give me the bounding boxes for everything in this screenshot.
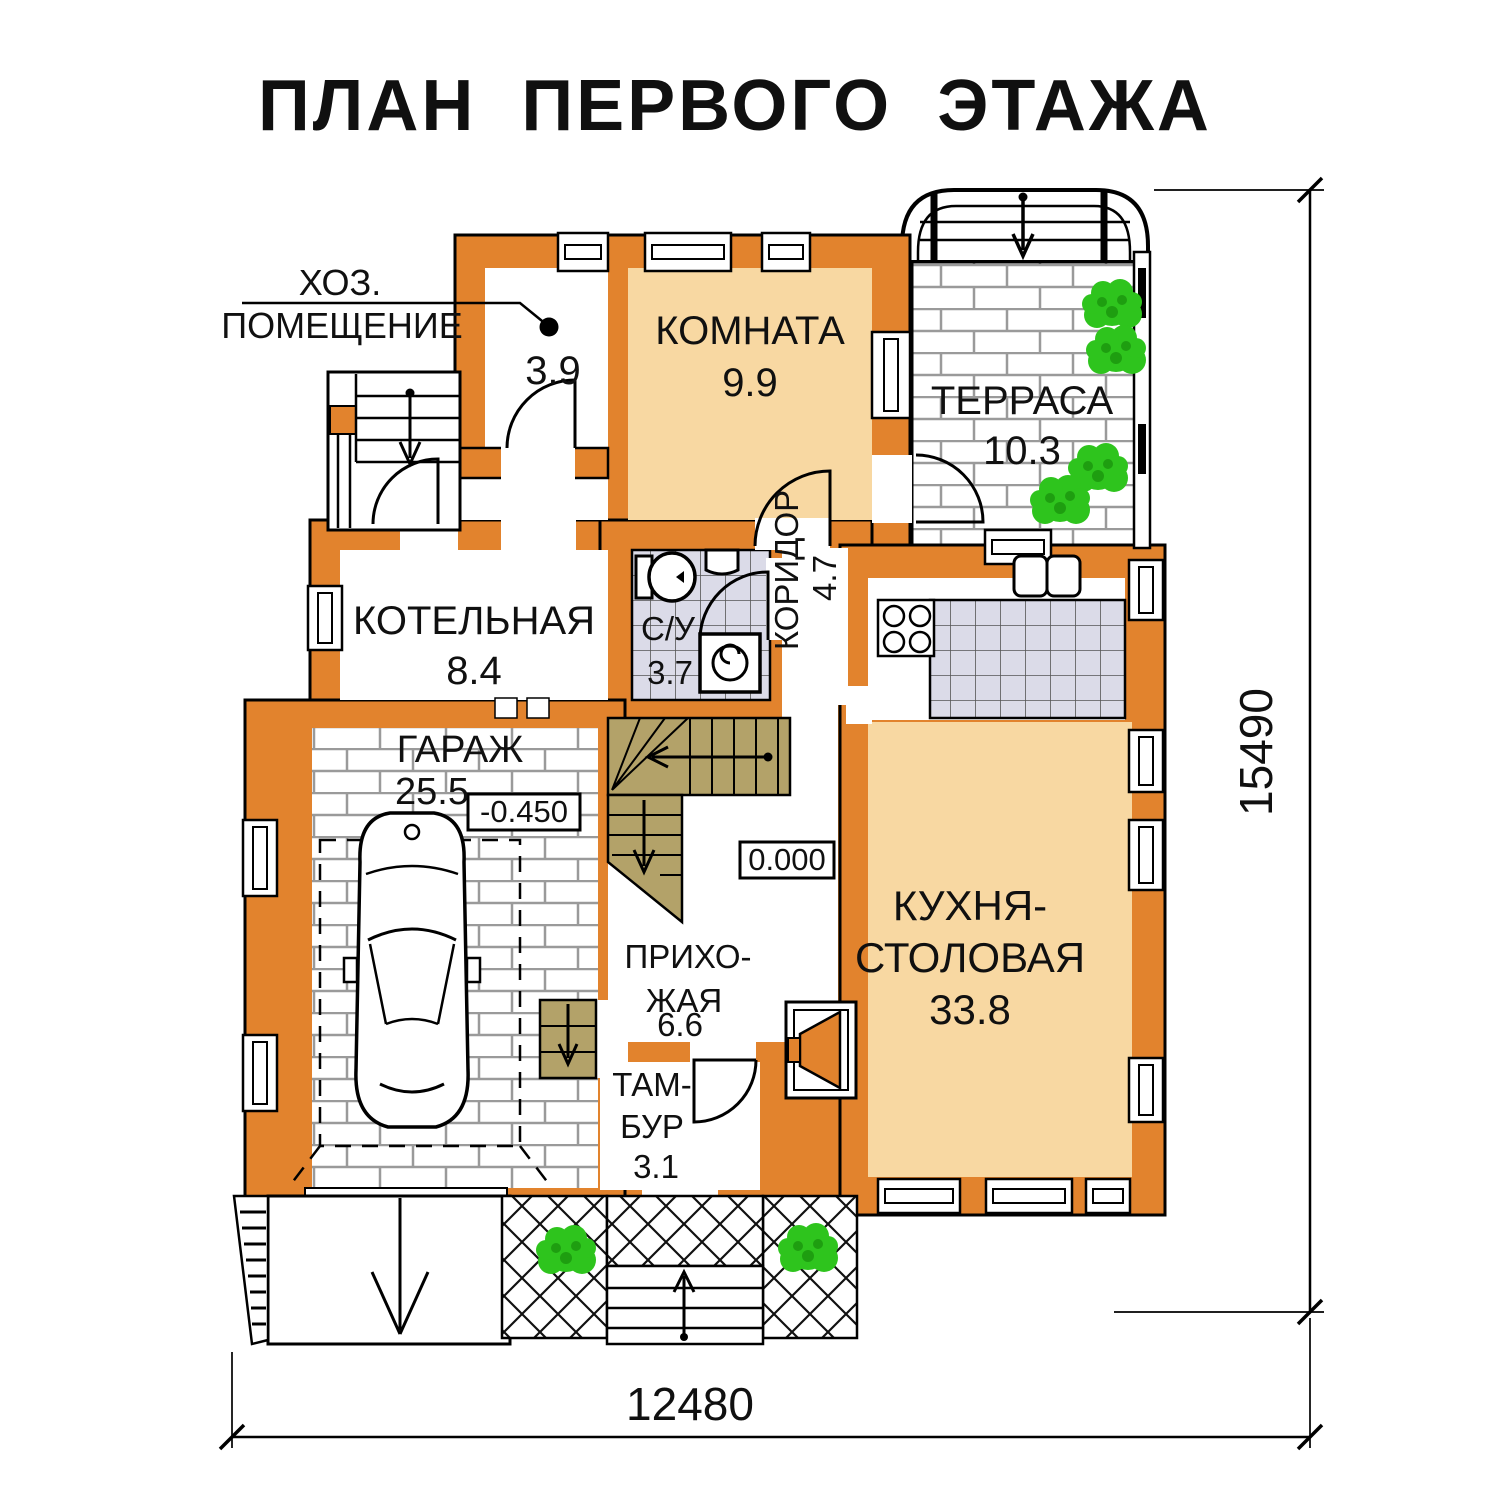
elevation-garage: -0.450 xyxy=(468,794,580,830)
window xyxy=(872,332,910,418)
terrace-entry-steps xyxy=(902,190,1148,262)
room-area-kuhnya: 33.8 xyxy=(929,986,1011,1033)
window xyxy=(1129,730,1163,792)
sink-icon xyxy=(706,550,738,574)
stairs-exterior xyxy=(328,372,460,530)
elevation-ground: 0.000 xyxy=(740,842,834,878)
room-area-terrasa: 10.3 xyxy=(983,429,1061,473)
window xyxy=(308,586,342,650)
room-area-prihozhaya: 6.6 xyxy=(657,1006,703,1043)
room-area-kotelnaya: 8.4 xyxy=(446,649,502,693)
stairs-garage xyxy=(540,1000,596,1078)
floor-entry-hall xyxy=(485,478,608,520)
window xyxy=(1086,1179,1130,1213)
entrance-porch xyxy=(502,1196,857,1344)
window xyxy=(1129,560,1163,620)
room-label-hoz-1: ХОЗ. xyxy=(299,262,382,303)
window xyxy=(645,233,731,271)
room-area-komnata: 9.9 xyxy=(722,361,778,405)
room-label-hoz-2: ПОМЕЩЕНИЕ xyxy=(221,305,463,346)
window xyxy=(1129,1058,1163,1122)
room-area-koridor: 4.7 xyxy=(806,555,843,601)
car-mirror xyxy=(344,958,357,982)
car-mirror xyxy=(467,958,480,982)
dimension-width-value: 12480 xyxy=(626,1378,754,1430)
fireplace-icon xyxy=(786,1002,856,1098)
room-label-komnata: КОМНАТА xyxy=(655,309,845,353)
window xyxy=(243,820,277,896)
elevation-ground-value: 0.000 xyxy=(748,842,826,877)
room-area-hoz: 3.9 xyxy=(525,349,581,393)
room-area-tambur: 3.1 xyxy=(633,1148,679,1185)
toilet-icon xyxy=(649,553,695,601)
driveway xyxy=(234,1196,510,1344)
room-label-kuhnya-1: КУХНЯ- xyxy=(893,882,1047,929)
window xyxy=(762,233,810,271)
room-area-garazh: 25.5 xyxy=(395,771,469,813)
room-label-terrasa: ТЕРРАСА xyxy=(931,379,1114,423)
room-label-kuhnya-2: СТОЛОВАЯ xyxy=(855,934,1085,981)
room-label-prihozhaya-1: ПРИХО- xyxy=(624,938,751,975)
page-title: ПЛАН ПЕРВОГО ЭТАЖА xyxy=(258,66,1212,146)
room-area-su: 3.7 xyxy=(647,654,693,691)
kitchen-sink-icon xyxy=(1014,556,1047,596)
room-label-tambur-1: ТАМ- xyxy=(612,1066,692,1103)
leader-dot xyxy=(540,318,559,337)
window xyxy=(1129,820,1163,890)
room-label-kotelnaya: КОТЕЛЬНАЯ xyxy=(353,599,595,643)
window xyxy=(878,1179,960,1213)
floor-plan-drawing: -0.450 0.000 ХОЗ. ПОМЕЩЕНИЕ 3.9 КОМНАТА … xyxy=(0,0,1500,1500)
window xyxy=(558,233,608,271)
dimension-height-value: 15490 xyxy=(1230,688,1282,816)
floor-plan-canvas: -0.450 0.000 ХОЗ. ПОМЕЩЕНИЕ 3.9 КОМНАТА … xyxy=(0,0,1500,1500)
room-label-tambur-2: БУР xyxy=(620,1108,684,1145)
window xyxy=(243,1035,277,1111)
room-label-su: С/У xyxy=(641,610,696,647)
room-label-koridor: КОРИДОР xyxy=(768,490,805,650)
room-label-garazh: ГАРАЖ xyxy=(397,729,524,771)
window xyxy=(986,1179,1072,1213)
elevation-garage-value: -0.450 xyxy=(480,794,568,829)
